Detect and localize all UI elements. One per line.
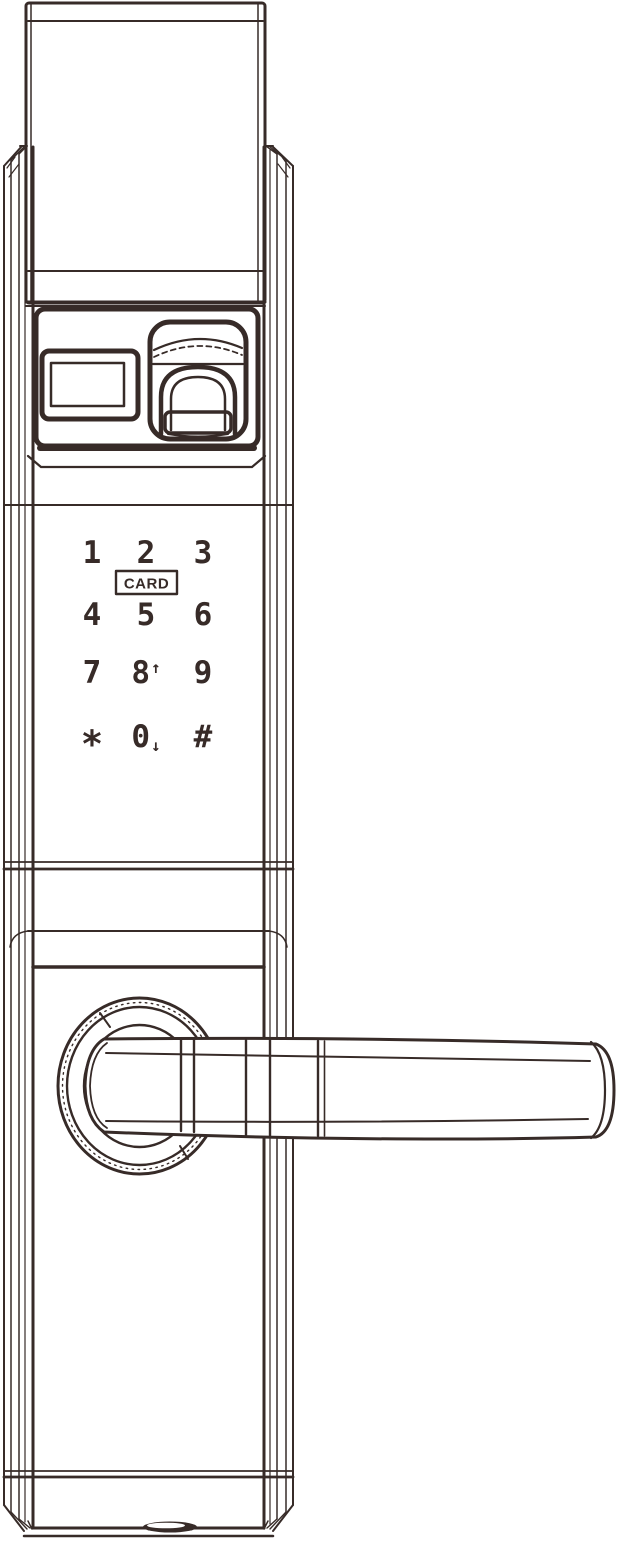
body-seam-mid-arcs xyxy=(10,931,287,947)
body-top-right-hatch xyxy=(278,157,290,177)
keypad-key-8-scroll-up[interactable]: 8↑ xyxy=(131,655,160,691)
display-inner-screen xyxy=(51,363,124,406)
fingerprint-scanner[interactable] xyxy=(150,322,246,439)
scanner-arch-inner xyxy=(171,377,225,430)
bottom-port[interactable] xyxy=(143,1522,197,1533)
card-label: CARD xyxy=(124,576,169,593)
keypad-key-star[interactable]: * xyxy=(81,723,103,766)
keypad-key-4[interactable]: 4 xyxy=(83,597,102,633)
keypad-key-9[interactable]: 9 xyxy=(194,655,213,691)
display-window xyxy=(42,351,138,419)
keypad-key-3[interactable]: 3 xyxy=(194,535,213,571)
cover-outline xyxy=(26,3,265,303)
keypad-key-5[interactable]: 5 xyxy=(137,597,156,633)
lock-diagram-canvas: 1 2 3 4 5 6 7 8↑ 9 * 0↓ # CARD xyxy=(0,0,617,1541)
touch-keypad: 1 2 3 4 5 6 7 8↑ 9 * 0↓ # CARD xyxy=(81,535,213,766)
keypad-key-hash[interactable]: # xyxy=(194,719,213,755)
panel-bevel xyxy=(28,456,265,467)
fingerprint-panel xyxy=(28,309,265,467)
scanner-top-arc xyxy=(154,339,242,350)
scanner-finger-rest xyxy=(165,412,231,433)
scanner-top-arc-stitch xyxy=(154,346,242,357)
smart-lock-line-drawing: 1 2 3 4 5 6 7 8↑ 9 * 0↓ # CARD xyxy=(0,0,617,1541)
body-bottom-left-chamfer xyxy=(4,1505,24,1531)
body-bottom-right-chamfer xyxy=(273,1505,293,1531)
keypad-key-2[interactable]: 2 xyxy=(137,535,156,571)
card-reader[interactable]: CARD xyxy=(116,571,177,594)
port-slot-highlight xyxy=(147,1523,185,1529)
keypad-key-0-scroll-down[interactable]: 0↓ xyxy=(131,719,160,755)
keypad-key-1[interactable]: 1 xyxy=(83,535,102,571)
top-cover-cap xyxy=(26,3,265,303)
keypad-key-6[interactable]: 6 xyxy=(194,597,213,633)
keypad-key-7[interactable]: 7 xyxy=(83,655,102,691)
lever-handle[interactable] xyxy=(85,1038,614,1139)
